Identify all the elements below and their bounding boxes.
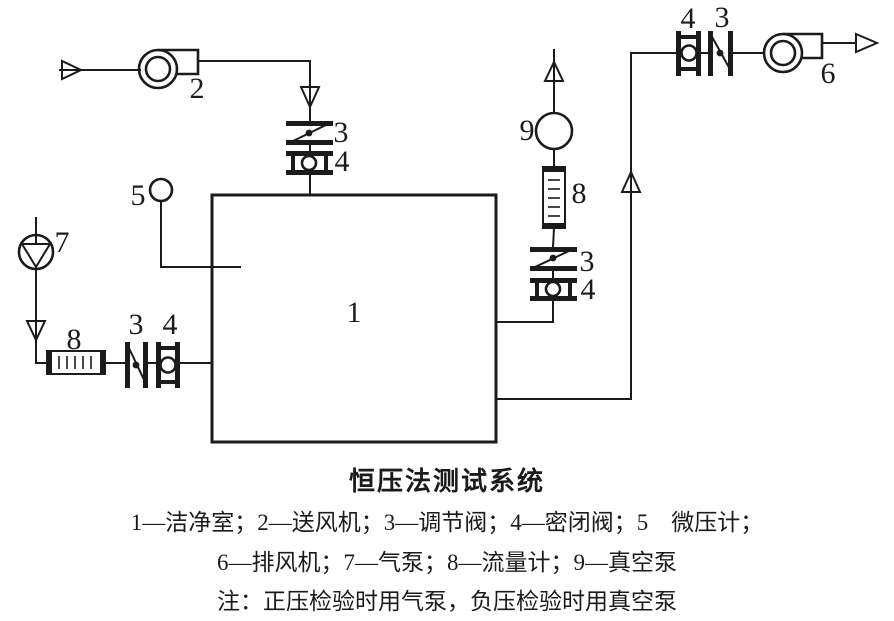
outlet-sealing-valve-symbol xyxy=(676,31,701,76)
outlet-regulating-valve-label: 3 xyxy=(715,1,730,34)
supply-fan-label: 2 xyxy=(190,72,205,105)
diagram-title: 恒压法测试系统 xyxy=(0,461,894,498)
pump-down-line xyxy=(36,269,47,363)
clean-room-label: 1 xyxy=(347,296,362,329)
exhaust-riser-line xyxy=(496,53,676,399)
left-sealing-valve-symbol xyxy=(156,342,180,388)
room-to-right-valves-line xyxy=(496,300,553,322)
outlet-arrow-icon xyxy=(856,34,877,52)
legend-line-1: 1—洁净室；2—送风机；3—调节阀；4—密闭阀；5 微压计； xyxy=(0,503,894,537)
legend-line-2: 6—排风机；7—气泵；8—流量计；9—真空泵 xyxy=(0,543,894,577)
air-pump-label: 7 xyxy=(55,226,70,259)
exhaust-fan-symbol xyxy=(764,34,822,72)
air-pump-symbol xyxy=(19,218,53,269)
right-regulating-valve-symbol xyxy=(530,247,577,271)
micro-manometer-label: 5 xyxy=(131,179,146,212)
right-regulating-valve-label: 3 xyxy=(580,245,595,278)
micro-manometer-symbol xyxy=(150,179,240,267)
left-sealing-valve-label: 4 xyxy=(163,308,178,341)
top-sealing-valve-symbol xyxy=(286,151,333,175)
exhaust-fan-label: 6 xyxy=(821,57,836,90)
right-flow-meter-symbol xyxy=(543,167,565,228)
right-flow-meter-label: 8 xyxy=(572,177,587,210)
valve-to-meter-line xyxy=(553,228,554,247)
outlet-regulating-valve-symbol xyxy=(708,31,733,76)
vacuum-pump-label: 9 xyxy=(520,114,535,147)
supply-duct-line xyxy=(198,61,310,121)
outlet-sealing-valve-label: 4 xyxy=(681,2,696,35)
right-sealing-valve-symbol xyxy=(530,278,577,301)
vacuum-pump-symbol xyxy=(536,113,572,149)
top-regulating-valve-symbol xyxy=(286,121,333,145)
note-line: 注：正压检验时用气泵，负压检验时用真空泵 xyxy=(0,582,894,616)
left-regulating-valve-label: 3 xyxy=(129,308,144,341)
left-flow-meter-label: 8 xyxy=(67,323,82,356)
top-sealing-valve-label: 4 xyxy=(335,145,350,178)
left-regulating-valve-symbol xyxy=(125,342,148,388)
